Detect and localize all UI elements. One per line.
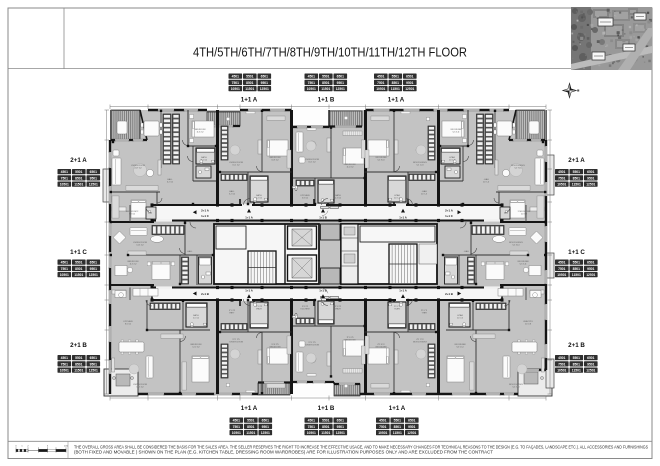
svg-text:1+1 A: 1+1 A <box>399 215 406 219</box>
svg-text:1+1 A: 1+1 A <box>389 405 406 412</box>
svg-text:5501: 5501 <box>573 261 581 265</box>
svg-text:3.2 m2: 3.2 m2 <box>420 308 427 310</box>
svg-text:10.8 m2: 10.8 m2 <box>377 160 385 162</box>
svg-text:8501: 8501 <box>573 176 581 180</box>
svg-text:7501: 7501 <box>558 267 566 271</box>
svg-text:10501: 10501 <box>60 273 69 277</box>
svg-text:HALL: HALL <box>421 311 427 314</box>
svg-text:1+1 A: 1+1 A <box>241 97 258 104</box>
svg-text:12.0 m2: 12.0 m2 <box>192 347 200 349</box>
svg-text:HALL: HALL <box>229 190 235 193</box>
svg-text:9501: 9501 <box>337 425 345 429</box>
svg-text:4501: 4501 <box>233 419 241 423</box>
svg-text:5501: 5501 <box>392 75 400 79</box>
svg-text:9.8 m2: 9.8 m2 <box>129 214 136 216</box>
svg-text:11501: 11501 <box>245 87 254 91</box>
svg-text:11.3 m2: 11.3 m2 <box>129 264 137 266</box>
svg-text:6501: 6501 <box>337 75 345 79</box>
svg-text:11.0 m2: 11.0 m2 <box>346 335 354 337</box>
svg-text:12501: 12501 <box>89 273 98 277</box>
svg-text:6501: 6501 <box>90 170 98 174</box>
svg-text:7501: 7501 <box>233 425 241 429</box>
svg-text:9501: 9501 <box>408 425 416 429</box>
svg-text:6.2 m2: 6.2 m2 <box>167 182 174 184</box>
svg-text:5501: 5501 <box>394 419 402 423</box>
svg-text:15.1 m2: 15.1 m2 <box>416 165 424 167</box>
svg-text:12501: 12501 <box>407 431 416 435</box>
svg-text:6501: 6501 <box>262 419 270 423</box>
svg-text:11501: 11501 <box>74 273 83 277</box>
svg-text:8501: 8501 <box>573 267 581 271</box>
svg-text:9.8 m2: 9.8 m2 <box>520 214 527 216</box>
svg-text:5501: 5501 <box>573 356 581 360</box>
svg-text:11501: 11501 <box>572 183 581 187</box>
svg-text:24.9 m2: 24.9 m2 <box>514 168 522 170</box>
svg-text:6501: 6501 <box>587 261 595 265</box>
svg-text:4501: 4501 <box>558 261 566 265</box>
svg-text:1+1 C: 1+1 C <box>201 214 210 218</box>
svg-text:4.2 m2: 4.2 m2 <box>256 304 263 306</box>
svg-text:7501: 7501 <box>61 362 69 366</box>
svg-text:10501: 10501 <box>378 431 387 435</box>
svg-text:5501: 5501 <box>322 419 330 423</box>
svg-text:1+1 B: 1+1 B <box>319 215 327 219</box>
svg-text:5501: 5501 <box>322 75 330 79</box>
svg-text:HALL: HALL <box>187 250 193 253</box>
svg-text:7501: 7501 <box>308 425 316 429</box>
svg-text:BATH: BATH <box>335 307 341 310</box>
svg-text:11.6 m2: 11.6 m2 <box>196 132 204 134</box>
svg-text:HALL: HALL <box>483 178 489 181</box>
svg-text:4.2 m2: 4.2 m2 <box>393 304 400 306</box>
svg-text:12501: 12501 <box>336 431 345 435</box>
svg-text:10501: 10501 <box>376 87 385 91</box>
svg-text:11501: 11501 <box>246 431 255 435</box>
svg-text:5.1 m2: 5.1 m2 <box>201 160 208 162</box>
svg-text:11501: 11501 <box>572 273 581 277</box>
svg-text:4.2 m2: 4.2 m2 <box>393 198 400 200</box>
svg-text:8501: 8501 <box>322 81 330 85</box>
svg-text:12501: 12501 <box>261 431 270 435</box>
svg-text:1+1 A: 1+1 A <box>399 289 406 293</box>
svg-text:7501: 7501 <box>61 267 69 271</box>
svg-text:6501: 6501 <box>587 356 595 360</box>
svg-text:4501: 4501 <box>61 261 69 265</box>
svg-text:HALL: HALL <box>463 250 469 253</box>
svg-text:10501: 10501 <box>307 431 316 435</box>
svg-text:9501: 9501 <box>90 362 98 366</box>
svg-text:11501: 11501 <box>572 369 581 373</box>
svg-text:6501: 6501 <box>337 419 345 423</box>
svg-text:3.2 m2: 3.2 m2 <box>229 194 236 196</box>
svg-text:6501: 6501 <box>587 170 595 174</box>
svg-text:HALL: HALL <box>421 190 427 193</box>
svg-text:11.6 m2: 11.6 m2 <box>452 132 460 134</box>
svg-text:THE OVERALL GROSS AREA SHALL B: THE OVERALL GROSS AREA SHALL BE CONSIDER… <box>74 444 648 449</box>
svg-text:3.2 m2: 3.2 m2 <box>229 308 236 310</box>
svg-text:7501: 7501 <box>558 176 566 180</box>
svg-text:BATH: BATH <box>193 314 199 317</box>
svg-text:9501: 9501 <box>261 81 269 85</box>
svg-text:2+1 A: 2+1 A <box>568 157 585 164</box>
svg-text:10501: 10501 <box>307 87 316 91</box>
svg-text:12501: 12501 <box>89 369 98 373</box>
svg-text:4501: 4501 <box>61 356 69 360</box>
svg-text:8501: 8501 <box>394 425 402 429</box>
svg-text:4501: 4501 <box>377 75 385 79</box>
svg-text:15.5 m2: 15.5 m2 <box>308 340 316 342</box>
svg-text:1+1 A: 1+1 A <box>245 215 252 219</box>
svg-text:9501: 9501 <box>337 81 345 85</box>
svg-text:6501: 6501 <box>406 75 414 79</box>
svg-text:6.2 m2: 6.2 m2 <box>482 182 489 184</box>
svg-text:12501: 12501 <box>586 183 595 187</box>
svg-text:HALL: HALL <box>167 178 173 181</box>
svg-text:4501: 4501 <box>558 356 566 360</box>
svg-text:1+1 C: 1+1 C <box>445 214 454 218</box>
svg-text:7501: 7501 <box>232 81 240 85</box>
svg-text:8501: 8501 <box>247 425 255 429</box>
svg-text:2+1 A: 2+1 A <box>70 157 87 164</box>
svg-text:BATH: BATH <box>449 156 455 159</box>
svg-text:9501: 9501 <box>587 176 595 180</box>
svg-text:1+1 A: 1+1 A <box>241 405 258 412</box>
svg-text:3.8 m2: 3.8 m2 <box>302 198 309 200</box>
svg-text:12501: 12501 <box>336 87 345 91</box>
svg-text:BATH: BATH <box>457 314 463 317</box>
svg-text:11501: 11501 <box>74 183 83 187</box>
svg-text:7501: 7501 <box>379 425 387 429</box>
svg-text:8501: 8501 <box>392 81 400 85</box>
svg-text:10501: 10501 <box>232 431 241 435</box>
svg-text:2+1 B: 2+1 B <box>568 342 585 349</box>
svg-text:4501: 4501 <box>232 75 240 79</box>
svg-text:5501: 5501 <box>75 356 83 360</box>
svg-text:10501: 10501 <box>557 369 566 373</box>
svg-text:10m: 10m <box>64 446 68 448</box>
svg-text:7501: 7501 <box>558 362 566 366</box>
svg-text:17.3 m2: 17.3 m2 <box>136 387 144 389</box>
svg-text:17.3 m2: 17.3 m2 <box>512 387 520 389</box>
svg-text:11501: 11501 <box>391 87 400 91</box>
svg-text:10.8 m2: 10.8 m2 <box>377 342 385 344</box>
svg-text:1+1 A: 1+1 A <box>388 97 405 104</box>
svg-text:8501: 8501 <box>75 176 83 180</box>
svg-text:4TH/5TH/6TH/7TH/8TH/9TH/10TH/1: 4TH/5TH/6TH/7TH/8TH/9TH/10TH/11TH/12TH F… <box>193 45 467 60</box>
svg-text:4.3 m2: 4.3 m2 <box>335 304 342 306</box>
svg-text:1+1 C: 1+1 C <box>70 249 87 256</box>
svg-text:5.0 m2: 5.0 m2 <box>193 318 200 320</box>
svg-text:BATH: BATH <box>201 156 207 159</box>
svg-text:11501: 11501 <box>321 87 330 91</box>
svg-text:10.8 m2: 10.8 m2 <box>271 342 279 344</box>
svg-text:10501: 10501 <box>60 369 69 373</box>
svg-text:8501: 8501 <box>75 267 83 271</box>
svg-text:10.8 m2: 10.8 m2 <box>271 160 279 162</box>
svg-text:6501: 6501 <box>90 261 98 265</box>
svg-text:6501: 6501 <box>408 419 416 423</box>
svg-text:15.1 m2: 15.1 m2 <box>416 337 424 339</box>
svg-text:5501: 5501 <box>573 170 581 174</box>
svg-text:4501: 4501 <box>379 419 387 423</box>
svg-text:12501: 12501 <box>586 369 595 373</box>
svg-text:5.0 m2: 5.0 m2 <box>456 318 463 320</box>
svg-text:9501: 9501 <box>90 176 98 180</box>
svg-text:4501: 4501 <box>61 170 69 174</box>
svg-text:4.3 m2: 4.3 m2 <box>335 198 342 200</box>
svg-text:2+1 B: 2+1 B <box>445 292 453 296</box>
svg-text:4501: 4501 <box>308 419 316 423</box>
svg-text:11501: 11501 <box>74 369 83 373</box>
svg-text:12.0 m2: 12.0 m2 <box>456 347 464 349</box>
svg-text:2+1 B: 2+1 B <box>201 292 209 296</box>
svg-text:(BOTH FIXED AND MOVABLE ) SHOW: (BOTH FIXED AND MOVABLE ) SHOWN ON THE P… <box>74 450 493 455</box>
svg-text:BATH: BATH <box>394 194 400 197</box>
svg-text:10501: 10501 <box>60 183 69 187</box>
svg-text:5.1 m2: 5.1 m2 <box>448 160 455 162</box>
svg-text:1+1 B: 1+1 B <box>318 405 335 412</box>
svg-text:8501: 8501 <box>75 362 83 366</box>
svg-text:11.0 m2: 11.0 m2 <box>346 167 354 169</box>
svg-text:9501: 9501 <box>262 425 270 429</box>
svg-text:8501: 8501 <box>246 81 254 85</box>
svg-text:12501: 12501 <box>586 273 595 277</box>
svg-text:5501: 5501 <box>75 261 83 265</box>
svg-text:15.1 m2: 15.1 m2 <box>232 337 240 339</box>
svg-text:12501: 12501 <box>89 183 98 187</box>
svg-text:10501: 10501 <box>557 183 566 187</box>
svg-text:4.2 m2: 4.2 m2 <box>256 198 263 200</box>
svg-text:12501: 12501 <box>405 87 414 91</box>
svg-text:9501: 9501 <box>587 362 595 366</box>
svg-text:4501: 4501 <box>558 170 566 174</box>
svg-text:14.6 m2: 14.6 m2 <box>136 245 144 247</box>
svg-text:11501: 11501 <box>393 431 402 435</box>
svg-text:BATH: BATH <box>256 194 262 197</box>
svg-text:15.1 m2: 15.1 m2 <box>232 165 240 167</box>
svg-text:5501: 5501 <box>247 419 255 423</box>
svg-text:3.2 m2: 3.2 m2 <box>420 194 427 196</box>
svg-text:2+1 A: 2+1 A <box>201 209 210 213</box>
svg-text:9501: 9501 <box>587 267 595 271</box>
svg-text:14.6 m2: 14.6 m2 <box>512 245 520 247</box>
svg-text:2+1 A: 2+1 A <box>445 209 454 213</box>
svg-text:BATH: BATH <box>256 307 262 310</box>
svg-text:BATH: BATH <box>394 307 400 310</box>
svg-text:24.9 m2: 24.9 m2 <box>134 168 142 170</box>
svg-text:8.6 m2: 8.6 m2 <box>524 324 531 326</box>
svg-text:6501: 6501 <box>90 356 98 360</box>
svg-text:7501: 7501 <box>308 81 316 85</box>
svg-text:7501: 7501 <box>61 176 69 180</box>
svg-text:6501: 6501 <box>261 75 269 79</box>
svg-text:12501: 12501 <box>260 87 269 91</box>
svg-text:2+1 B: 2+1 B <box>70 342 87 349</box>
svg-text:1+1 C: 1+1 C <box>568 249 585 256</box>
svg-text:3.8 m2: 3.8 m2 <box>302 304 309 306</box>
svg-text:1+1 B: 1+1 B <box>319 289 327 293</box>
svg-text:15.5 m2: 15.5 m2 <box>308 162 316 164</box>
svg-text:8501: 8501 <box>322 425 330 429</box>
svg-text:8.6 m2: 8.6 m2 <box>125 324 132 326</box>
svg-text:4501: 4501 <box>308 75 316 79</box>
svg-text:8501: 8501 <box>573 362 581 366</box>
svg-text:11501: 11501 <box>321 431 330 435</box>
svg-text:5501: 5501 <box>246 75 254 79</box>
svg-text:7501: 7501 <box>377 81 385 85</box>
svg-text:10501: 10501 <box>557 273 566 277</box>
svg-text:HALL: HALL <box>229 311 235 314</box>
svg-text:5501: 5501 <box>75 170 83 174</box>
svg-text:1+1 B: 1+1 B <box>318 97 335 104</box>
svg-text:9501: 9501 <box>90 267 98 271</box>
svg-text:9501: 9501 <box>406 81 414 85</box>
svg-text:BATH: BATH <box>335 194 341 197</box>
svg-text:10501: 10501 <box>231 87 240 91</box>
svg-text:1+1 A: 1+1 A <box>245 289 252 293</box>
svg-text:11.3 m2: 11.3 m2 <box>519 264 527 266</box>
